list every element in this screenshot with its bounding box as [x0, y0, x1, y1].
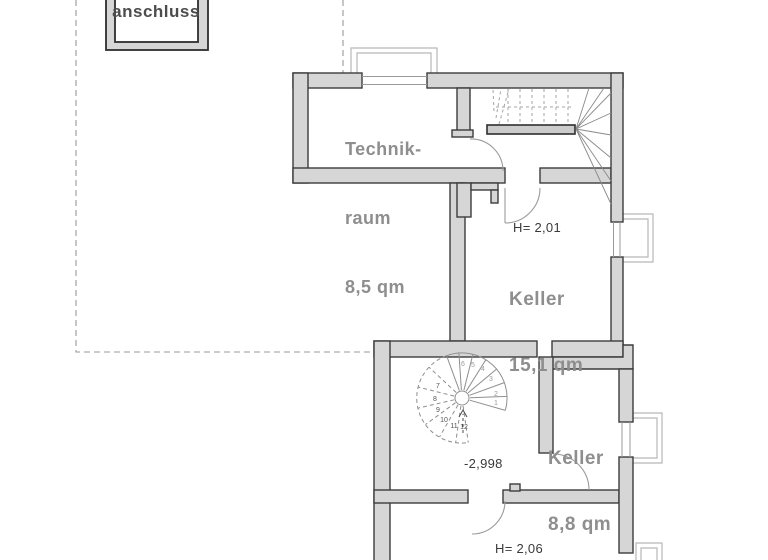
- stair-handrail: [487, 125, 575, 134]
- room-name: Keller: [509, 289, 583, 311]
- step-number: 3: [489, 376, 493, 383]
- light-well-top: [351, 48, 437, 73]
- wall-lower-east-upper: [619, 369, 633, 422]
- wall-lower-south-left: [374, 490, 468, 503]
- wall-east-upper: [611, 73, 623, 222]
- door-keller-main: [505, 188, 540, 223]
- wall-west: [293, 73, 308, 183]
- light-well-right-lower: [633, 413, 662, 463]
- door-jamb-cap: [452, 130, 473, 137]
- step-number: 6: [461, 361, 465, 368]
- door-hall: [470, 139, 503, 171]
- step-number: 10: [440, 417, 448, 424]
- step-number: 11: [450, 423, 457, 430]
- room-name: Keller: [548, 448, 611, 470]
- spiral-staircase: 1 2 3 4 5 6 7 8 9 10 11 12: [417, 353, 507, 443]
- height-note-lower-room: H= 2,06: [495, 541, 543, 556]
- wall-top-right: [427, 73, 623, 88]
- room-area: 8,8 qm: [548, 514, 611, 536]
- step-number: 9: [436, 407, 440, 414]
- height-note-keller-main: H= 2,01: [513, 220, 561, 235]
- window-right-lower: [622, 422, 630, 457]
- step-number: 1: [494, 400, 498, 407]
- window-right-upper: [614, 222, 621, 257]
- door-lower-room: [472, 501, 505, 534]
- room-area: 15,1 qm: [509, 355, 583, 377]
- room-area: 8,5 qm: [345, 276, 422, 299]
- chimney-block: [457, 183, 498, 217]
- room-name-line: raum: [345, 207, 422, 230]
- room-label-technikraum: Technik- raum 8,5 qm: [345, 92, 422, 345]
- door-jamb-bump: [510, 484, 520, 491]
- wall-east-mid: [611, 257, 623, 345]
- connection-box-label: anschluss: [104, 2, 208, 22]
- step-number: 12: [460, 424, 468, 431]
- straight-staircase: [487, 88, 611, 204]
- wall-technikraum-east: [457, 88, 470, 131]
- light-well-bottom-right: [636, 543, 662, 560]
- wall-lower-west: [374, 341, 390, 560]
- step-number: 4: [481, 366, 485, 373]
- room-label-keller-small: Keller 8,8 qm: [548, 404, 611, 560]
- step-number: 8: [433, 396, 437, 403]
- room-name-line: Technik-: [345, 138, 422, 161]
- step-number: 2: [494, 391, 498, 398]
- wall-lower-east-lower: [619, 457, 633, 553]
- step-number: 5: [471, 362, 475, 369]
- floor-plan: 1 2 3 4 5 6 7 8 9 10 11 12 anschluss Tec…: [0, 0, 768, 560]
- window-top: [362, 77, 427, 85]
- step-number: 7: [436, 383, 440, 390]
- room-label-keller-main: Keller 15,1 qm: [509, 245, 583, 421]
- level-marker: -2,998: [464, 456, 503, 471]
